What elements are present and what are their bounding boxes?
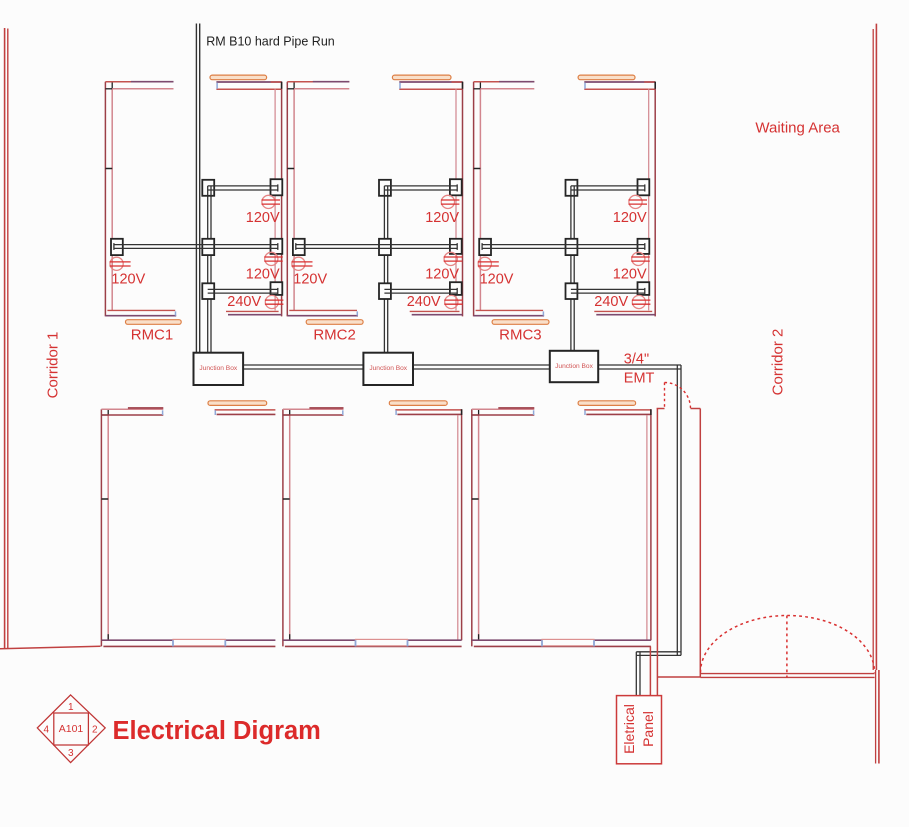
svg-text:3: 3: [68, 748, 74, 759]
svg-text:120V: 120V: [246, 267, 280, 283]
svg-text:A101: A101: [59, 723, 84, 735]
svg-text:Corridor 1: Corridor 1: [45, 332, 62, 399]
svg-text:120V: 120V: [613, 210, 647, 226]
svg-text:Corridor 2: Corridor 2: [769, 329, 786, 396]
svg-text:120V: 120V: [480, 272, 514, 288]
svg-text:Electrical Digram: Electrical Digram: [113, 717, 321, 745]
svg-text:1: 1: [68, 702, 74, 713]
svg-text:Junction Box: Junction Box: [369, 365, 407, 372]
svg-text:RMC1: RMC1: [131, 327, 174, 344]
svg-text:Eletrical: Eletrical: [621, 704, 637, 754]
svg-text:RMC2: RMC2: [313, 327, 356, 344]
svg-text:Junction Box: Junction Box: [199, 365, 237, 372]
svg-text:3/4": 3/4": [624, 352, 649, 368]
svg-text:240V: 240V: [407, 294, 441, 310]
svg-text:240V: 240V: [594, 294, 628, 310]
svg-text:Junction Box: Junction Box: [555, 363, 593, 370]
svg-text:RMC3: RMC3: [499, 327, 542, 344]
svg-text:120V: 120V: [425, 267, 459, 283]
svg-text:4: 4: [44, 724, 50, 735]
svg-text:120V: 120V: [246, 210, 280, 226]
svg-text:RM B10 hard Pipe Run: RM B10 hard Pipe Run: [206, 34, 335, 48]
svg-text:Waiting Area: Waiting Area: [755, 120, 840, 137]
svg-text:120V: 120V: [613, 267, 647, 283]
svg-text:120V: 120V: [425, 210, 459, 226]
svg-text:120V: 120V: [293, 272, 327, 288]
svg-text:EMT: EMT: [624, 371, 655, 387]
svg-text:120V: 120V: [111, 272, 145, 288]
svg-text:2: 2: [92, 724, 98, 735]
svg-text:240V: 240V: [227, 294, 261, 310]
svg-text:Panel: Panel: [640, 711, 656, 747]
